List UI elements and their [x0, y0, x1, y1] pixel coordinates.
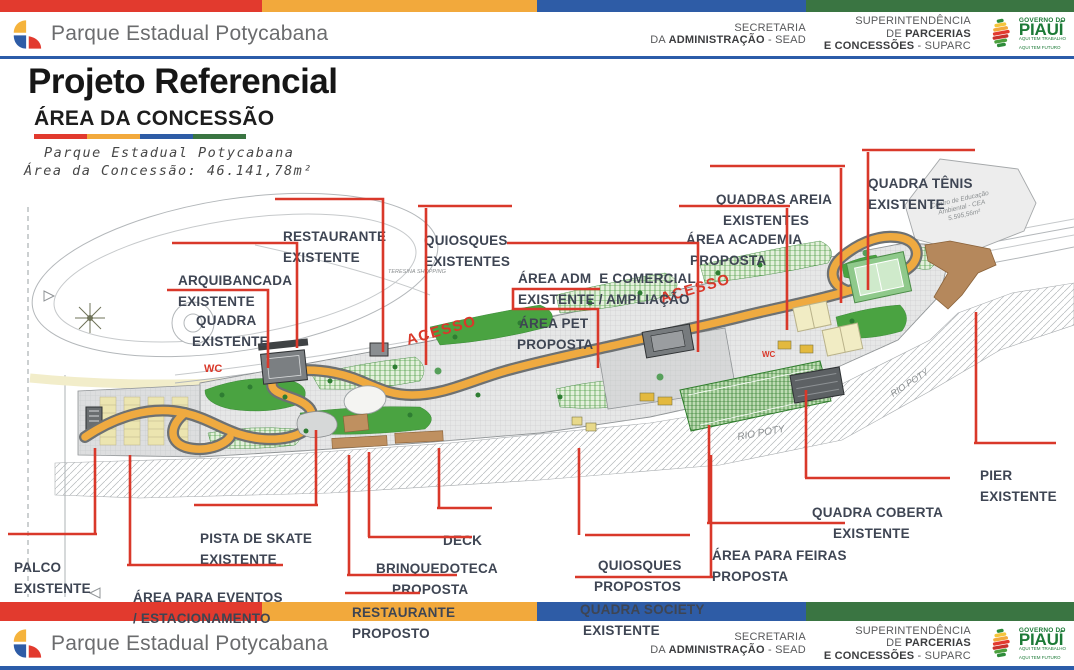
page-subtitle: ÁREA DA CONCESSÃO	[34, 107, 274, 131]
header-divider	[0, 56, 1074, 59]
callout-quadra-society: QUADRA SOCIETYEXISTENTE	[580, 557, 705, 641]
governo-piaui-logo: GOVERNO DO PIAUÍ AQUI TEM TRABALHO AQUI …	[989, 626, 1066, 662]
secretaria-block: SECRETARIA DA ADMINISTRAÇÃO - SEAD	[650, 22, 806, 47]
restaurante-structure	[370, 343, 388, 356]
governo-piaui-logo: GOVERNO DO PIAUÍ AQUI TEM TRABALHO AQUI …	[989, 16, 1066, 52]
compass-tree-symbol	[75, 303, 105, 333]
callout-palco-existente: PALCOEXISTENTE	[14, 515, 91, 599]
brand-title: Parque Estadual Potycabana	[51, 632, 328, 656]
governo-text: GOVERNO DO PIAUÍ AQUI TEM TRABALHO AQUI …	[1019, 626, 1066, 662]
piaui-map-icon	[989, 626, 1015, 662]
callout-quiosques-existentes: QUIOSQUESEXISTENTES	[424, 188, 510, 272]
callout-area-feiras: ÁREA PARA FEIRASPROPOSTA	[712, 503, 847, 587]
stripe-green	[806, 0, 1074, 12]
quadra-structure	[261, 350, 308, 384]
stripe-green	[806, 602, 1074, 621]
brand: Parque Estadual Potycabana	[12, 18, 328, 51]
callout-deck: DECK	[443, 488, 482, 551]
page-title: Projeto Referencial	[28, 62, 338, 102]
brand-title: Parque Estadual Potycabana	[51, 22, 328, 46]
park-logo-icon	[12, 18, 42, 51]
callout-area-academia: ÁREA ACADEMIAPROPOSTA	[686, 187, 802, 271]
footer-orgs: SECRETARIA DA ADMINISTRAÇÃO - SEAD SUPER…	[650, 625, 1066, 663]
callout-quadra-existente: QUADRAEXISTENTE	[196, 268, 269, 352]
header-stripe-bar	[0, 0, 1074, 12]
callout-pier-existente: PIEREXISTENTE	[980, 423, 1057, 507]
piaui-map-icon	[989, 16, 1015, 52]
skate-bowl	[297, 411, 337, 437]
suparc-block: SUPERINTENDÊNCIA DE PARCERIAS E CONCESSÕ…	[824, 15, 971, 53]
header-band: Parque Estadual Potycabana SECRETARIA DA…	[0, 12, 1074, 56]
callout-restaurante-existente: RESTAURANTEEXISTENTE	[283, 184, 386, 268]
governo-text: GOVERNO DO PIAUÍ AQUI TEM TRABALHO AQUI …	[1019, 16, 1066, 52]
header-orgs: SECRETARIA DA ADMINISTRAÇÃO - SEAD SUPER…	[650, 15, 1066, 53]
wc-label-2: WC	[762, 350, 776, 359]
stripe-yellow	[262, 0, 537, 12]
footer-divider	[0, 666, 1074, 670]
suparc-block: SUPERINTENDÊNCIA DE PARCERIAS E CONCESSÕ…	[824, 625, 971, 663]
callout-restaurante-proposto: RESTAURANTEPROPOSTO	[352, 560, 455, 644]
callout-quadra-tenis: QUADRA TÊNISEXISTENTE	[868, 131, 973, 215]
park-logo-icon	[12, 627, 42, 660]
brand-footer: Parque Estadual Potycabana	[12, 627, 328, 660]
slide: { "brand": { "title": "Parque Estadual P…	[0, 0, 1074, 670]
callout-area-pet: ÁREA PETPROPOSTA	[519, 271, 593, 355]
stripe-blue	[537, 0, 806, 12]
subtitle-colorbar	[34, 134, 246, 139]
callout-area-eventos: ÁREA PARA EVENTOS/ ESTACIONAMENTO	[133, 545, 283, 629]
stripe-red	[0, 0, 262, 12]
wc-label-1: WC	[204, 363, 222, 375]
